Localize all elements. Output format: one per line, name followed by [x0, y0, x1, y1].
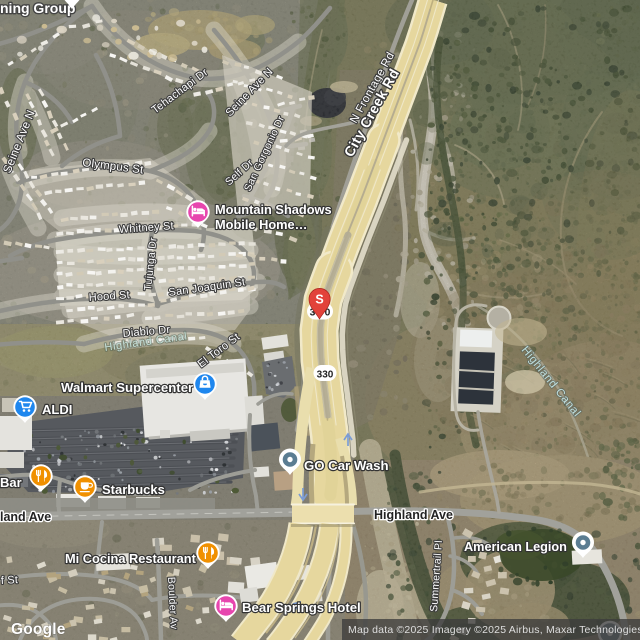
svg-text:Walmart Supercenter: Walmart Supercenter: [61, 380, 193, 395]
svg-text:S: S: [315, 293, 323, 307]
svg-text:Starbucks: Starbucks: [102, 482, 165, 497]
svg-text:GO Car Wash: GO Car Wash: [304, 458, 389, 473]
svg-text:Mi Cocina Restaurant: Mi Cocina Restaurant: [65, 551, 197, 566]
svg-text:330: 330: [317, 370, 334, 381]
svg-text:land Ave: land Ave: [0, 510, 51, 524]
svg-text:Mountain Shadows: Mountain Shadows: [215, 202, 332, 217]
svg-text:Highland Ave: Highland Ave: [374, 508, 453, 522]
svg-text:Google: Google: [11, 621, 66, 638]
svg-text:Mobile Home…: Mobile Home…: [215, 217, 307, 232]
svg-text:Bar: Bar: [0, 475, 22, 490]
svg-text:American Legion: American Legion: [464, 540, 567, 554]
svg-text:f St: f St: [1, 574, 19, 587]
svg-text:Bear Springs Hotel: Bear Springs Hotel: [242, 600, 361, 615]
svg-text:Map data ©2025 Imagery ©2025: Map data ©2025 Imagery ©2025 Airbus, Max…: [348, 624, 640, 636]
svg-text:ning Group: ning Group: [0, 0, 75, 16]
svg-text:ALDI: ALDI: [42, 402, 72, 417]
